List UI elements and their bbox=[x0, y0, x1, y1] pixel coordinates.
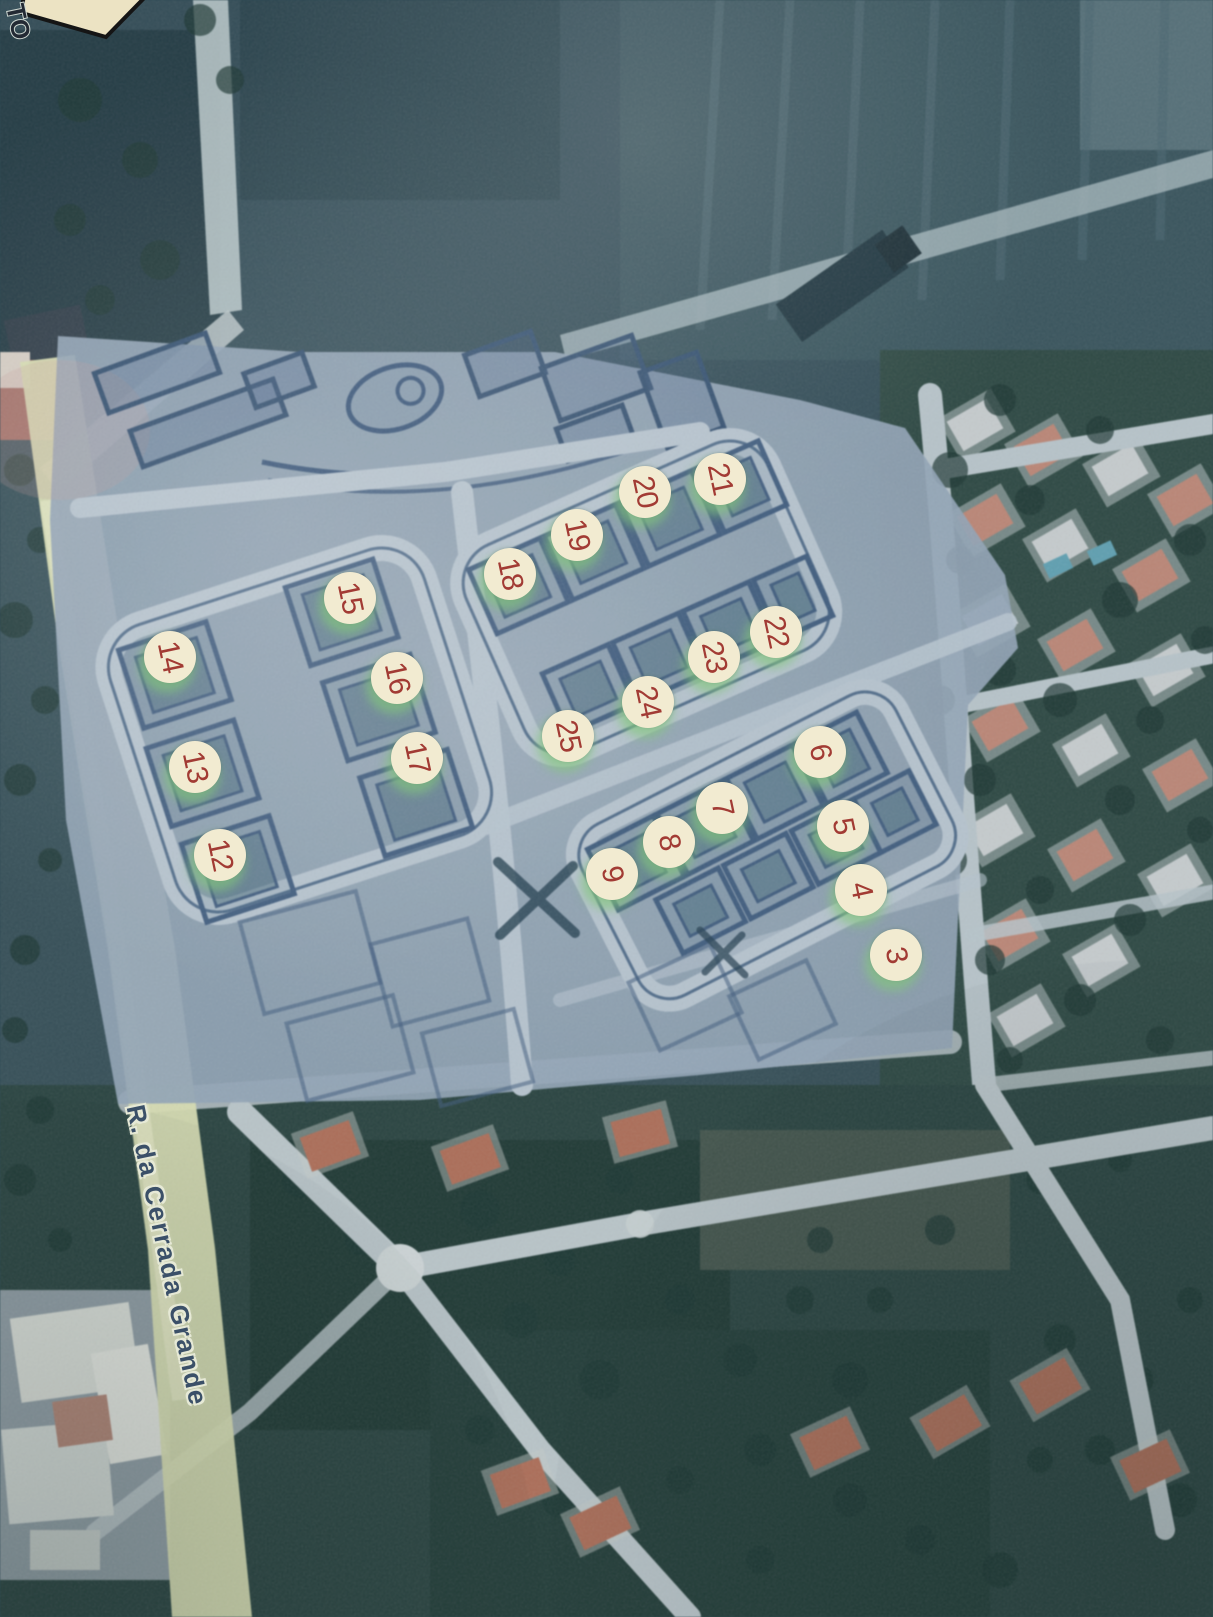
lot-marker-20: 20 bbox=[619, 466, 671, 518]
lot-marker-number: 12 bbox=[200, 836, 240, 874]
lot-marker-9: 9 bbox=[586, 848, 638, 900]
lot-marker-19: 19 bbox=[551, 509, 603, 561]
lot-marker-number: 9 bbox=[594, 863, 631, 885]
lot-marker-16: 16 bbox=[371, 652, 423, 704]
lot-marker-24: 24 bbox=[622, 676, 674, 728]
lot-marker-number: 13 bbox=[175, 748, 215, 786]
lot-marker-number: 16 bbox=[377, 659, 417, 697]
lot-marker-18: 18 bbox=[484, 548, 536, 600]
lot-marker-12: 12 bbox=[194, 829, 246, 881]
lot-marker-21: 21 bbox=[694, 453, 746, 505]
lot-marker-8: 8 bbox=[643, 816, 695, 868]
lot-marker-22: 22 bbox=[750, 606, 802, 658]
lot-marker-25: 25 bbox=[542, 710, 594, 762]
lot-marker-7: 7 bbox=[696, 782, 748, 834]
lot-marker-number: 3 bbox=[878, 944, 915, 966]
lot-marker-number: 23 bbox=[694, 638, 734, 676]
lot-marker-number: 8 bbox=[651, 831, 688, 853]
lot-marker-13: 13 bbox=[169, 741, 221, 793]
lot-marker-number: 4 bbox=[843, 879, 880, 901]
lot-marker-14: 14 bbox=[144, 631, 196, 683]
lot-marker-number: 19 bbox=[557, 516, 597, 554]
lot-markers-layer: 34567891213141516171819202122232425 bbox=[0, 0, 1213, 1617]
printed-aerial-map-photo: R. da Cerrada Grande TO 3456789121314151… bbox=[0, 0, 1213, 1617]
lot-marker-15: 15 bbox=[324, 572, 376, 624]
lot-marker-number: 24 bbox=[628, 683, 668, 721]
lot-marker-number: 18 bbox=[490, 555, 530, 593]
lot-marker-number: 20 bbox=[625, 473, 665, 511]
lot-marker-number: 15 bbox=[330, 579, 370, 617]
lot-marker-4: 4 bbox=[835, 864, 887, 916]
lot-marker-17: 17 bbox=[391, 732, 443, 784]
lot-marker-number: 17 bbox=[397, 739, 437, 777]
lot-marker-6: 6 bbox=[794, 726, 846, 778]
lot-marker-number: 5 bbox=[825, 815, 862, 837]
lot-marker-number: 6 bbox=[802, 741, 839, 763]
lot-marker-3: 3 bbox=[870, 929, 922, 981]
lot-marker-5: 5 bbox=[817, 800, 869, 852]
lot-marker-number: 21 bbox=[700, 460, 740, 498]
lot-marker-number: 14 bbox=[150, 638, 190, 676]
lot-marker-number: 25 bbox=[548, 717, 588, 755]
lot-marker-number: 22 bbox=[756, 613, 796, 651]
lot-marker-23: 23 bbox=[688, 631, 740, 683]
lot-marker-number: 7 bbox=[704, 797, 741, 819]
